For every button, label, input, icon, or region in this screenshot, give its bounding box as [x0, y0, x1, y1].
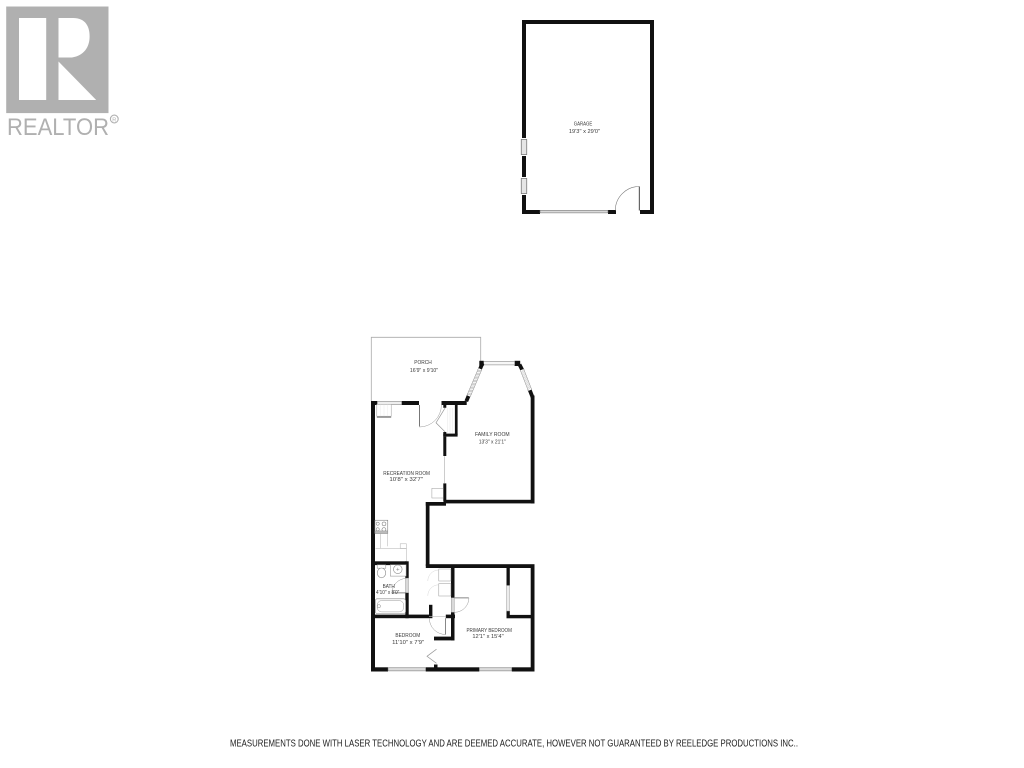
svg-text:16'9" x 9'10": 16'9" x 9'10": [410, 368, 438, 374]
svg-text:PRIMARY BEDROOM: PRIMARY BEDROOM: [467, 628, 512, 634]
svg-text:FAMILY ROOM: FAMILY ROOM: [475, 432, 510, 438]
svg-text:13'3" x 21'1": 13'3" x 21'1": [479, 439, 506, 445]
svg-text:12'1" x 15'4": 12'1" x 15'4": [472, 634, 503, 640]
svg-text:MEASUREMENTS DONE WITH LASER T: MEASUREMENTS DONE WITH LASER TECHNOLOGY …: [230, 739, 798, 750]
svg-text:GARAGE: GARAGE: [574, 122, 593, 128]
svg-text:R: R: [112, 117, 116, 123]
svg-text:PORCH: PORCH: [414, 360, 432, 366]
svg-text:4'10" x 8'0": 4'10" x 8'0": [376, 590, 399, 596]
svg-text:BEDROOM: BEDROOM: [395, 633, 420, 639]
svg-text:10'8" x 32'7": 10'8" x 32'7": [389, 477, 423, 483]
svg-text:REALTOR: REALTOR: [7, 114, 109, 141]
svg-text:19'3" x 29'0": 19'3" x 29'0": [569, 129, 600, 135]
svg-text:11'10" x 7'9": 11'10" x 7'9": [392, 640, 424, 646]
